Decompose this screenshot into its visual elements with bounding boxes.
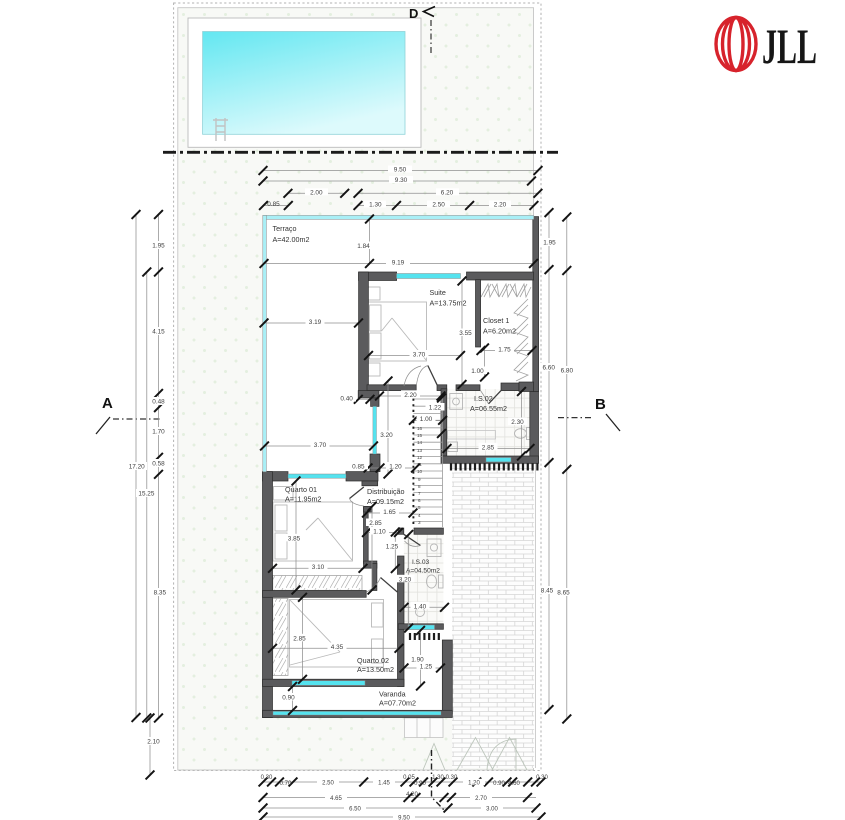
svg-text:0.58: 0.58 [152, 461, 165, 468]
svg-text:Suite: Suite [430, 288, 446, 297]
svg-text:2.20: 2.20 [404, 392, 417, 399]
svg-text:9.30: 9.30 [395, 177, 408, 184]
svg-text:2.85: 2.85 [482, 444, 495, 451]
svg-text:I.S.02: I.S.02 [474, 394, 493, 403]
svg-text:1.75: 1.75 [498, 347, 511, 354]
svg-text:3.20: 3.20 [380, 432, 393, 439]
svg-text:16: 16 [417, 426, 423, 431]
svg-text:1.10: 1.10 [373, 529, 386, 536]
svg-text:1.25: 1.25 [386, 543, 399, 550]
svg-text:A=11.95m2: A=11.95m2 [285, 495, 321, 504]
svg-text:0.90: 0.90 [493, 781, 505, 787]
svg-text:4.35: 4.35 [331, 644, 344, 651]
svg-text:1.22: 1.22 [429, 405, 442, 412]
svg-text:0.30: 0.30 [261, 775, 273, 781]
svg-text:10: 10 [417, 469, 423, 474]
svg-text:1.40: 1.40 [414, 603, 427, 610]
svg-text:Quarto 01: Quarto 01 [285, 485, 317, 494]
svg-text:15: 15 [417, 433, 423, 438]
svg-text:8.35: 8.35 [154, 590, 167, 597]
svg-text:A=04.50m2: A=04.50m2 [406, 568, 440, 575]
svg-text:6.60: 6.60 [542, 365, 555, 372]
svg-text:Quarto 02: Quarto 02 [357, 656, 389, 665]
svg-text:8: 8 [418, 484, 421, 489]
svg-text:0.48: 0.48 [152, 399, 165, 406]
svg-text:2.85: 2.85 [369, 520, 382, 527]
svg-text:3.00: 3.00 [486, 806, 498, 812]
svg-text:8.45: 8.45 [541, 588, 554, 595]
svg-text:3.70: 3.70 [413, 352, 426, 359]
svg-text:2.50: 2.50 [322, 780, 334, 786]
svg-text:1.30: 1.30 [369, 202, 382, 209]
svg-text:9.50: 9.50 [398, 815, 410, 820]
svg-text:3: 3 [418, 520, 421, 525]
svg-text:1.95: 1.95 [152, 243, 165, 250]
svg-text:A=42.00m2: A=42.00m2 [273, 235, 310, 244]
svg-text:2.30: 2.30 [511, 419, 524, 426]
svg-text:1.95: 1.95 [543, 240, 556, 247]
svg-text:1.65: 1.65 [383, 509, 396, 516]
svg-text:14: 14 [417, 440, 423, 445]
svg-text:6.80: 6.80 [561, 368, 574, 375]
svg-text:1.45: 1.45 [378, 780, 390, 786]
svg-text:7: 7 [418, 491, 421, 496]
svg-text:3.20: 3.20 [399, 576, 412, 583]
svg-text:A=6.20m2: A=6.20m2 [483, 327, 516, 336]
svg-text:1.20: 1.20 [468, 780, 480, 786]
svg-text:0.85: 0.85 [352, 464, 365, 471]
svg-text:A=13.75m2: A=13.75m2 [430, 299, 467, 308]
svg-text:6.20: 6.20 [441, 189, 454, 196]
svg-text:Terraço: Terraço [273, 224, 297, 233]
svg-text:A=13.50m2: A=13.50m2 [357, 665, 394, 674]
svg-text:0.85: 0.85 [267, 201, 280, 208]
svg-text:13: 13 [417, 448, 423, 453]
svg-text:A=07.70m2: A=07.70m2 [379, 699, 416, 708]
svg-text:15.25: 15.25 [138, 491, 154, 498]
svg-text:1.30: 1.30 [432, 775, 444, 781]
svg-text:2.10: 2.10 [147, 739, 160, 746]
svg-text:Distribuição: Distribuição [367, 487, 405, 496]
svg-text:2.85: 2.85 [293, 635, 306, 642]
svg-text:9: 9 [418, 477, 421, 482]
svg-text:0.70: 0.70 [280, 781, 292, 787]
svg-text:0.90: 0.90 [282, 695, 295, 702]
svg-text:0.90: 0.90 [414, 781, 426, 787]
svg-text:6: 6 [418, 498, 421, 503]
svg-text:2.50: 2.50 [432, 202, 445, 209]
svg-text:5: 5 [418, 505, 421, 510]
svg-text:3.19: 3.19 [309, 319, 322, 326]
svg-text:I.S.03: I.S.03 [412, 559, 430, 566]
svg-text:4.20: 4.20 [406, 792, 418, 798]
svg-text:JLL: JLL [762, 18, 817, 74]
svg-text:1.20: 1.20 [389, 464, 402, 471]
svg-text:3.10: 3.10 [312, 564, 325, 571]
svg-text:A: A [102, 395, 113, 412]
svg-text:1.00: 1.00 [420, 416, 433, 423]
svg-text:9.50: 9.50 [394, 167, 407, 174]
svg-text:A=06.55m2: A=06.55m2 [470, 404, 507, 413]
svg-text:0.30: 0.30 [536, 775, 548, 781]
svg-text:D: D [409, 6, 418, 21]
svg-text:4.60: 4.60 [508, 781, 520, 787]
svg-text:1.70: 1.70 [152, 429, 165, 436]
svg-text:4: 4 [418, 513, 421, 518]
svg-text:17.20: 17.20 [129, 464, 145, 471]
svg-text:3.70: 3.70 [314, 442, 327, 449]
svg-text:1.00: 1.00 [471, 368, 484, 375]
svg-text:0.30: 0.30 [446, 775, 458, 781]
svg-text:2.20: 2.20 [494, 202, 507, 209]
svg-text:2.70: 2.70 [475, 796, 487, 802]
svg-text:0.40: 0.40 [340, 396, 353, 403]
svg-text:Closet 1: Closet 1 [483, 316, 509, 325]
svg-text:2.00: 2.00 [310, 189, 323, 196]
svg-text:8.65: 8.65 [557, 590, 570, 597]
svg-text:4.15: 4.15 [152, 329, 165, 336]
svg-text:12: 12 [417, 455, 423, 460]
svg-text:9.19: 9.19 [392, 260, 405, 267]
svg-text:3.55: 3.55 [459, 330, 472, 337]
svg-text:1.84: 1.84 [357, 243, 370, 250]
svg-text:4.65: 4.65 [330, 796, 342, 802]
svg-text:6.50: 6.50 [349, 806, 361, 812]
svg-text:Varanda: Varanda [379, 690, 406, 699]
svg-text:1.25: 1.25 [420, 664, 433, 671]
svg-text:B: B [595, 396, 606, 413]
svg-text:3.85: 3.85 [288, 535, 301, 542]
